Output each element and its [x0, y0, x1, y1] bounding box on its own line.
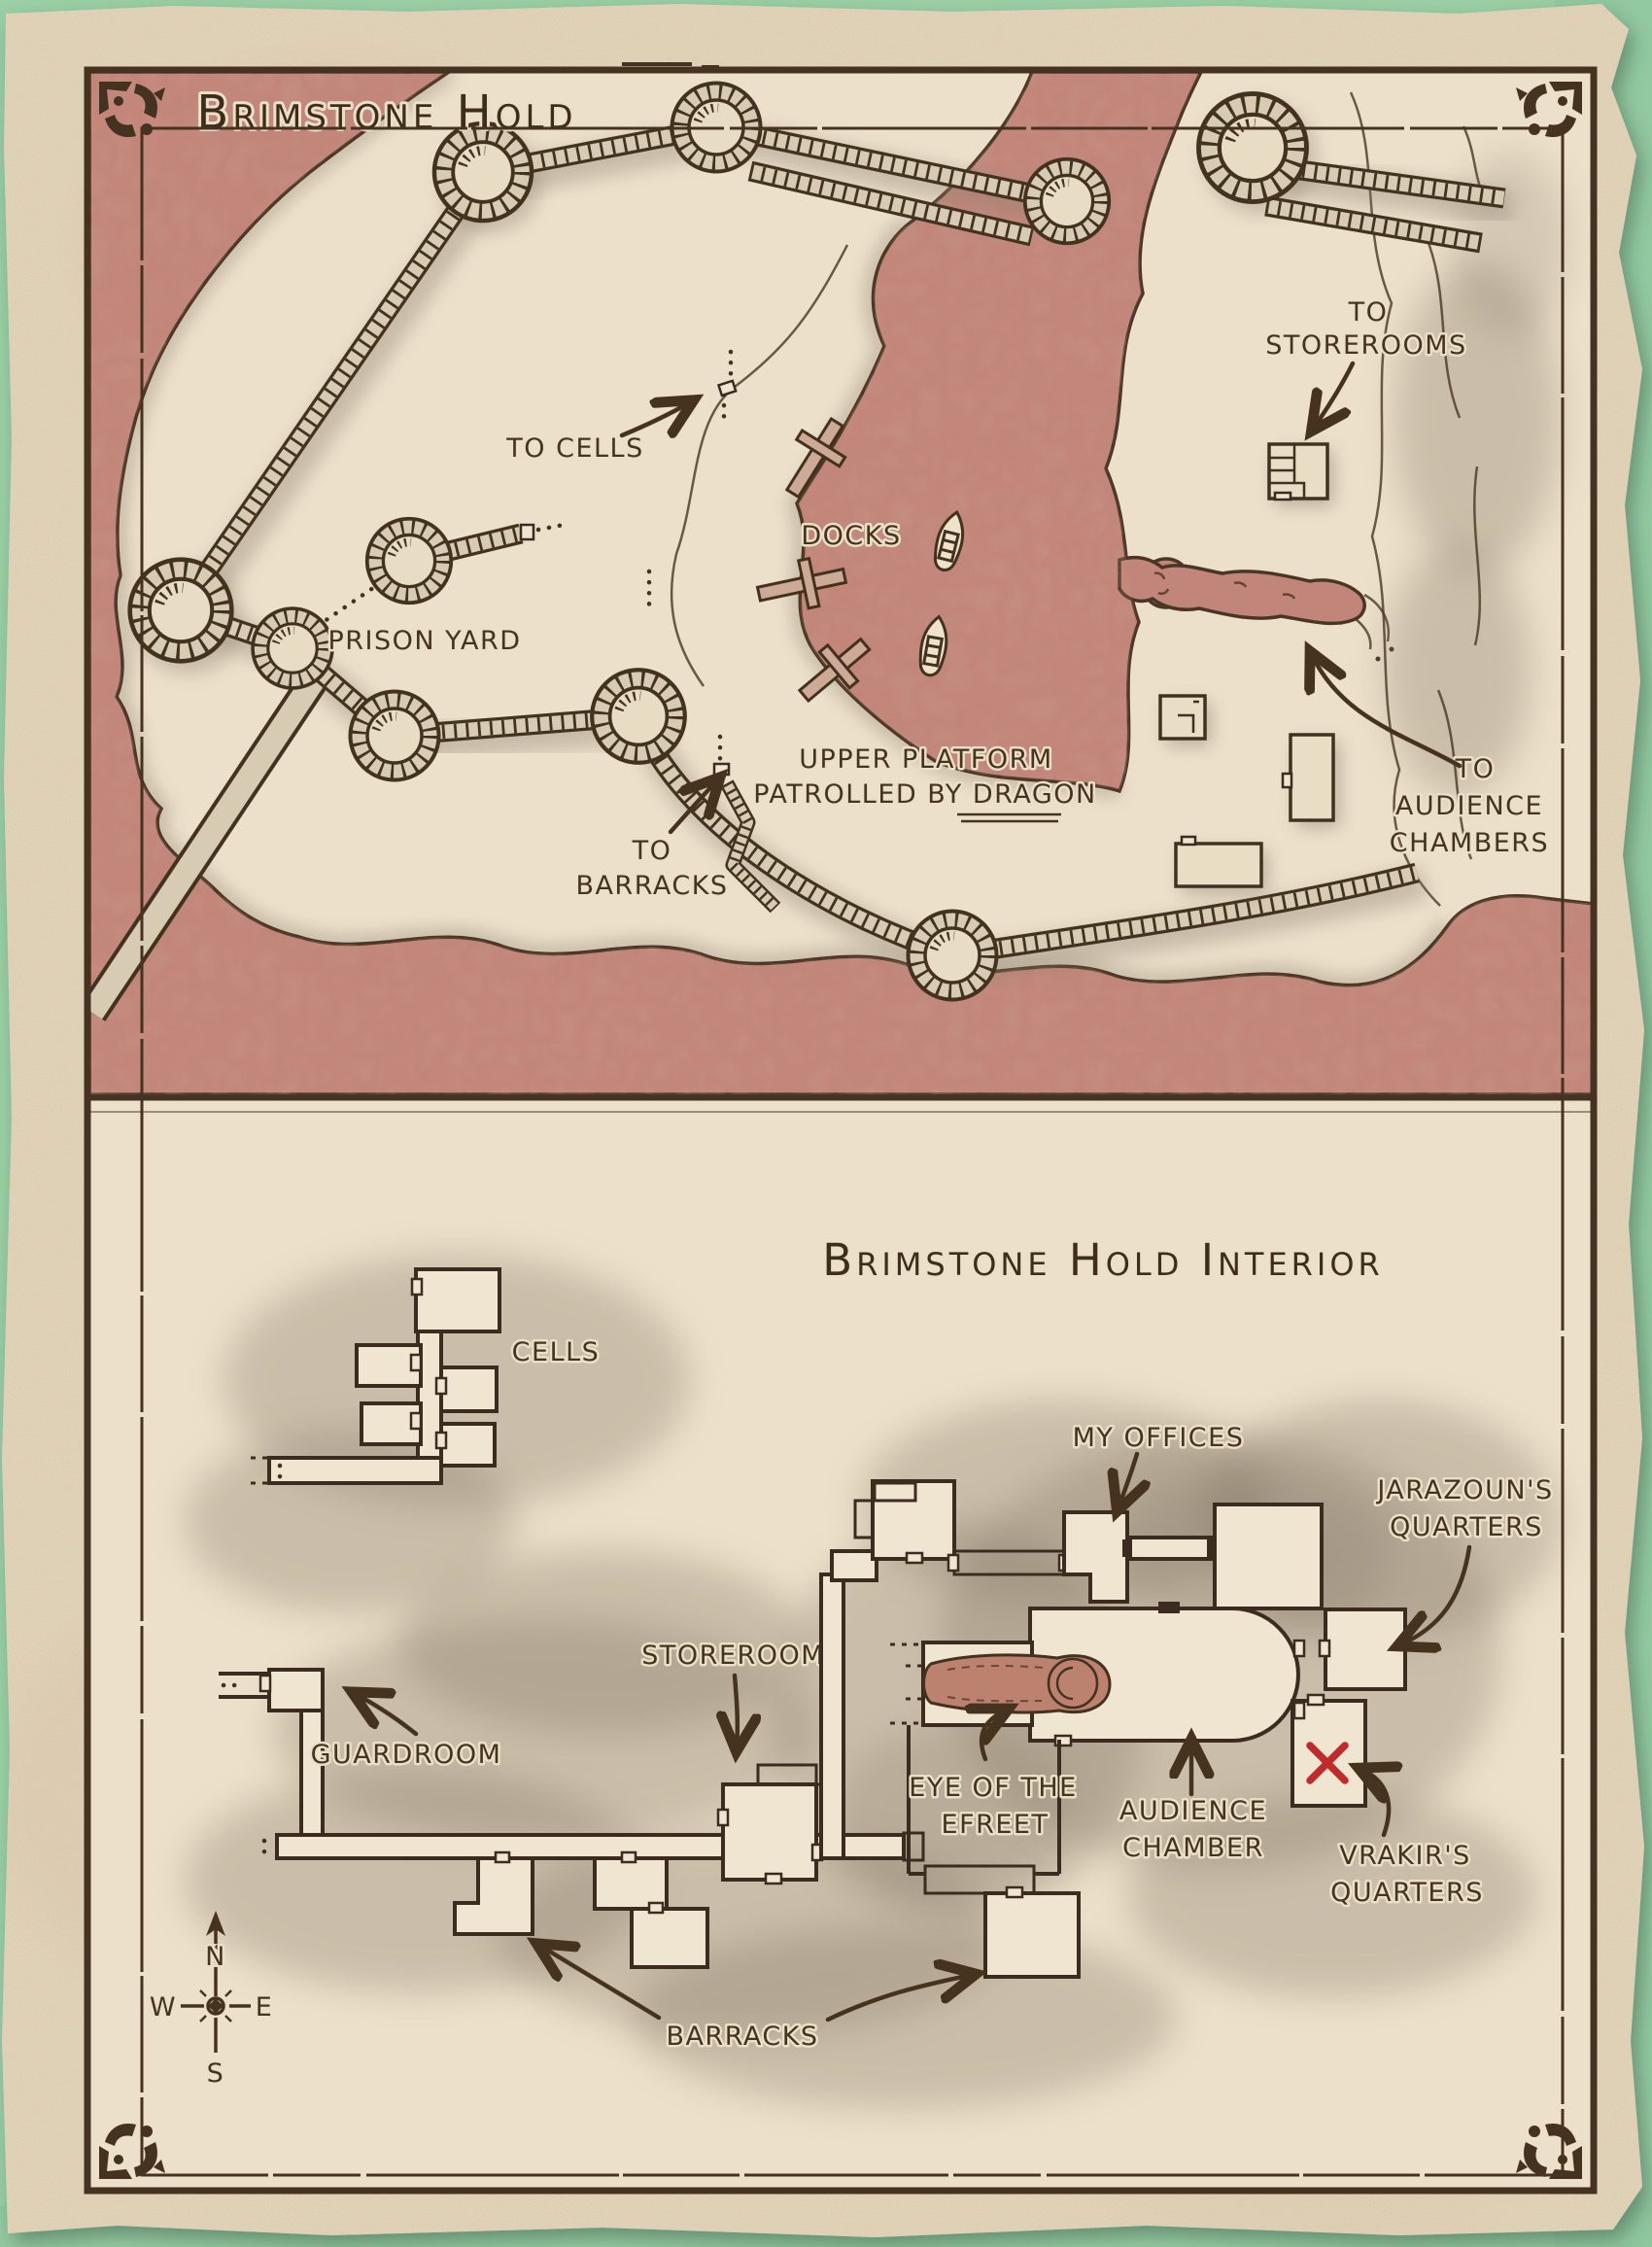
svg-text:QUARTERS: QUARTERS	[1330, 1878, 1484, 1908]
overview-title: Brimstone Hold	[196, 86, 576, 140]
tower-icon	[592, 670, 685, 763]
label-prison-yard: PRISON YARD	[327, 626, 521, 656]
brimstone-hold-map: Brimstone Hold TO STOREROOMS TO CELLS DO…	[0, 0, 1652, 2247]
svg-text:PATROLLED BY DRAGON: PATROLLED BY DRAGON	[753, 779, 1096, 810]
label-docks: DOCKS	[801, 521, 901, 551]
svg-text:BARRACKS: BARRACKS	[575, 871, 728, 901]
interior-title: Brimstone Hold Interior	[822, 1234, 1384, 1286]
tower-icon	[130, 560, 232, 662]
label-to-barracks: TO	[632, 836, 672, 866]
svg-text:CHAMBER: CHAMBER	[1122, 1833, 1264, 1863]
tower-icon	[1198, 93, 1306, 201]
overview-map: Brimstone Hold TO STOREROOMS TO CELLS DO…	[89, 72, 1594, 1094]
svg-text:AUDIENCE: AUDIENCE	[1395, 791, 1543, 821]
compass-east: E	[256, 1992, 274, 2022]
label-eye-of-efreet: EYE OF THE	[909, 1773, 1077, 1803]
arrow-storerooms	[735, 1676, 738, 1747]
compass-south: S	[207, 2058, 225, 2089]
compass-north: N	[205, 1942, 226, 1972]
label-my-offices: MY OFFICES	[1073, 1423, 1245, 1453]
compass-west: W	[150, 1992, 177, 2022]
label-to-storerooms: TO	[1348, 297, 1389, 328]
svg-text:CHAMBERS: CHAMBERS	[1390, 828, 1549, 858]
map-stage: Brimstone Hold TO STOREROOMS TO CELLS DO…	[0, 0, 1652, 2247]
label-vrakir: VRAKIR'S	[1339, 1841, 1471, 1871]
label-upper-platform: UPPER PLATFORM	[799, 744, 1052, 775]
label-guardroom: GUARDROOM	[311, 1740, 502, 1770]
label-jarazoun: JARAZOUN'S	[1375, 1475, 1553, 1505]
interior-map: CELLS GUARDROOM	[89, 1100, 1594, 2189]
label-to-cells: TO CELLS	[505, 433, 643, 464]
tower-icon	[253, 608, 332, 688]
label-storerooms: STOREROOMS	[641, 1641, 843, 1671]
tower-icon	[351, 692, 439, 780]
label-audience-chamber: AUDIENCE	[1119, 1796, 1267, 1826]
svg-text:STOREROOMS: STOREROOMS	[1265, 330, 1466, 361]
eye-of-efreet-lava	[906, 1655, 1110, 1712]
tower-icon	[1025, 159, 1109, 243]
label-barracks: BARRACKS	[666, 2022, 818, 2052]
tower-icon	[367, 519, 451, 603]
label-to-audience-chambers: TO	[1455, 754, 1496, 784]
label-cells: CELLS	[512, 1337, 601, 1367]
tower-icon	[909, 912, 997, 1000]
svg-text:QUARTERS: QUARTERS	[1390, 1512, 1543, 1542]
svg-text:EFREET: EFREET	[942, 1810, 1050, 1840]
